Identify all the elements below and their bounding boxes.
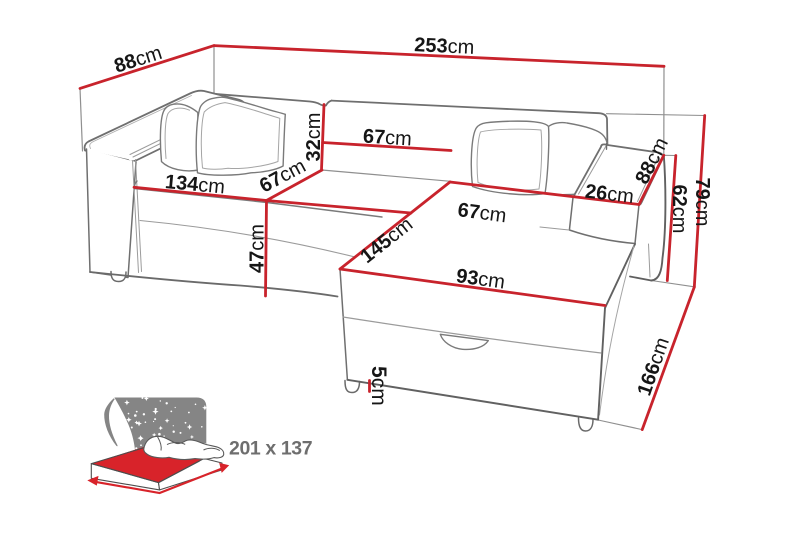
svg-text:32cm: 32cm [303,113,325,162]
svg-text:201 x 137: 201 x 137 [229,437,312,459]
svg-text:67cm: 67cm [362,126,412,151]
svg-text:79cm: 79cm [691,178,713,227]
svg-text:253cm: 253cm [414,34,475,59]
svg-text:47cm: 47cm [247,224,269,273]
svg-text:5cm: 5cm [367,366,390,406]
svg-text:62cm: 62cm [668,185,690,234]
